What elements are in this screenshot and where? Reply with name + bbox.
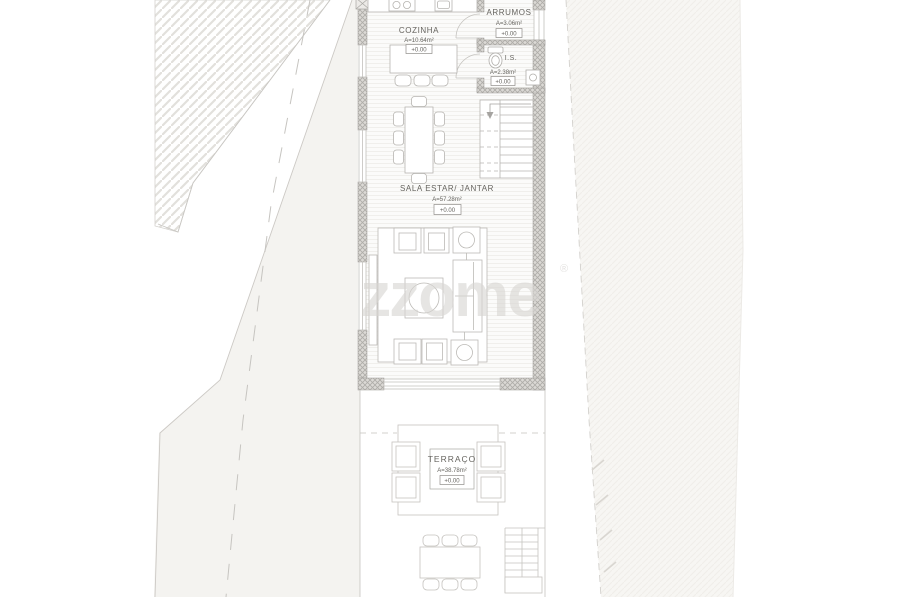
outdoor-chair — [423, 579, 439, 590]
armchair — [422, 339, 447, 364]
window-right-1 — [534, 10, 544, 40]
armchair — [424, 228, 449, 253]
wall-is-bottom — [477, 88, 545, 93]
watermark-registered-icon: ® — [560, 263, 568, 275]
site-terrain-right — [566, 0, 743, 597]
wall-right — [533, 0, 545, 390]
side-table — [453, 227, 480, 253]
outdoor-dining — [420, 535, 480, 590]
outdoor-dining-table — [420, 547, 480, 578]
room-name: COZINHA — [399, 26, 439, 35]
room-area: A=3.06m² — [496, 21, 522, 27]
room-area: A=2.38m² — [490, 70, 516, 76]
sink-icon — [435, 0, 452, 11]
dining-chair — [435, 131, 445, 145]
terrace: TERRAÇO A=38.78m² +0.00 — [360, 390, 545, 597]
outdoor-chair — [461, 579, 477, 590]
room-level: +0.00 — [411, 48, 427, 54]
lounge-chair — [392, 442, 420, 471]
outdoor-chair — [442, 579, 458, 590]
wall-arrumos-is — [477, 40, 545, 45]
dining-chair — [394, 112, 404, 126]
kitchen-counter — [368, 0, 477, 12]
room-name: TERRAÇO — [428, 454, 477, 464]
room-level: +0.00 — [440, 208, 456, 214]
lounge-chair — [392, 473, 420, 502]
bar-stool — [432, 75, 448, 86]
glass-door-terrace — [384, 379, 500, 389]
outdoor-chair — [461, 535, 477, 546]
terrace-label: TERRAÇO A=38.78m² +0.00 — [428, 449, 477, 489]
dining-chair — [394, 131, 404, 145]
lounge-chair — [477, 473, 505, 502]
room-area: A=38.78m² — [437, 468, 467, 474]
outdoor-stairs — [505, 528, 545, 593]
dining-chair — [435, 112, 445, 126]
floor-plan-drawing: COZINHA A=10.64m² +0.00 ARRUMOS A=3.06m²… — [0, 0, 900, 597]
dining-chair — [412, 174, 427, 184]
watermark: zzome ® — [360, 261, 568, 330]
room-level: +0.00 — [444, 479, 460, 485]
room-area: A=57.28m² — [432, 197, 462, 203]
window-left-2 — [359, 130, 366, 182]
room-name: SALA ESTAR/ JANTAR — [400, 184, 494, 193]
armchair — [394, 228, 421, 253]
cooktop-icon — [389, 0, 415, 11]
floor-plan-page: COZINHA A=10.64m² +0.00 ARRUMOS A=3.06m²… — [0, 0, 900, 597]
room-level: +0.00 — [495, 80, 511, 86]
outdoor-chair — [442, 535, 458, 546]
dining-chair — [412, 97, 427, 107]
room-level: +0.00 — [501, 32, 517, 38]
dining-table — [405, 107, 433, 173]
watermark-logo: zzome — [360, 261, 540, 330]
bar-stool — [414, 75, 430, 86]
staircase — [480, 100, 533, 178]
bar-stool — [395, 75, 411, 86]
dining-chair — [394, 150, 404, 164]
dining-chair — [435, 150, 445, 164]
toilet-icon — [488, 47, 503, 68]
bar-stools — [395, 75, 448, 86]
side-table — [451, 340, 478, 365]
room-area: A=10.64m² — [404, 38, 434, 44]
outdoor-chair — [423, 535, 439, 546]
room-name: ARRUMOS — [486, 8, 531, 17]
armchair — [394, 339, 421, 364]
washbasin-icon — [526, 70, 540, 85]
window-left-1 — [359, 45, 366, 77]
room-name: I.S. — [505, 55, 518, 62]
lounge-chair — [477, 442, 505, 471]
